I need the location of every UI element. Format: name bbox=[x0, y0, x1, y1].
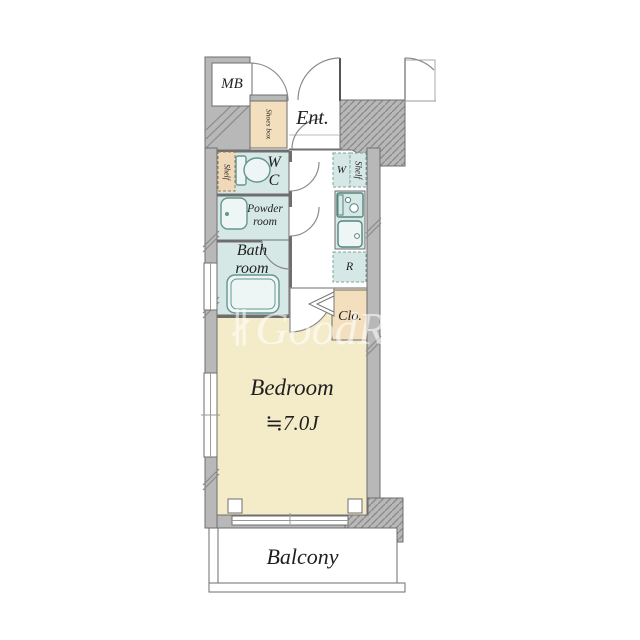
wall-top-band bbox=[250, 95, 287, 101]
bedroom-side-window bbox=[201, 373, 220, 457]
floorplan-canvas bbox=[0, 0, 640, 640]
front-door-arc bbox=[298, 58, 340, 100]
floorplan-image: MB Ent. Shoes box Shelf W C W Shelf Powd… bbox=[0, 0, 640, 640]
powder-sink-icon bbox=[221, 198, 247, 229]
balcony bbox=[209, 528, 405, 592]
balcony-floor bbox=[218, 528, 397, 583]
fridge-space bbox=[333, 252, 366, 282]
kitchen-sink-icon bbox=[338, 221, 362, 247]
shoes-box bbox=[250, 101, 287, 148]
balcony-rail-bottom bbox=[209, 583, 405, 592]
entrance-floor bbox=[287, 101, 340, 148]
meter-box bbox=[212, 63, 252, 106]
window-return-right bbox=[348, 499, 362, 513]
corridor-floor bbox=[289, 148, 333, 290]
wall-right bbox=[367, 148, 380, 500]
bath-window bbox=[204, 263, 217, 310]
closet bbox=[332, 290, 367, 340]
window-return-left bbox=[228, 499, 242, 513]
washer-space bbox=[333, 153, 350, 187]
wall-left bbox=[205, 148, 217, 528]
bathtub-icon bbox=[227, 275, 279, 313]
neighbor-entrance bbox=[405, 58, 436, 101]
wc-shelf-box bbox=[218, 152, 235, 191]
kitchen-shelf-box bbox=[350, 153, 366, 187]
balcony-rail-left bbox=[209, 528, 218, 592]
kitchen-counter bbox=[335, 191, 365, 249]
